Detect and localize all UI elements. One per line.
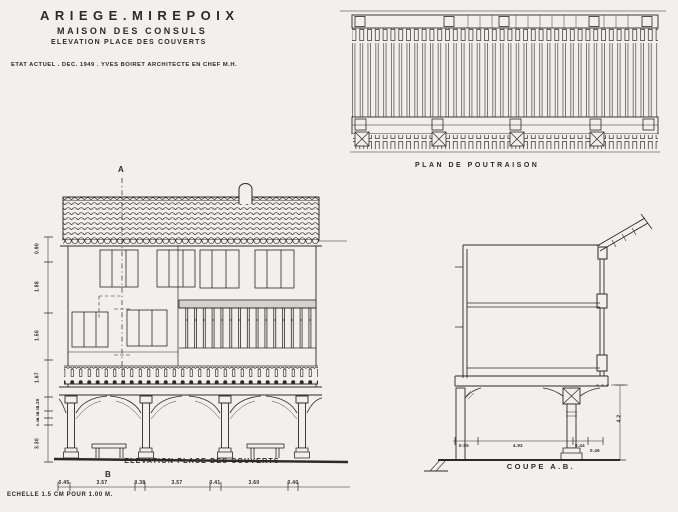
elevation-dim: 0.40 [283, 481, 303, 486]
axis-marker-a: A [118, 166, 124, 174]
elevation-dim: 3.57 [167, 481, 187, 486]
gallery-band [179, 300, 316, 348]
benches [92, 444, 284, 458]
rafter [597, 214, 652, 251]
elevation-left-dim: 1.50 [36, 326, 41, 346]
section-drawing [424, 214, 652, 471]
elevation-dim: 3.57 [92, 481, 112, 486]
section-dim: 4.92 [508, 444, 528, 449]
sheet-subtitle: MAISON DES CONSULS [57, 27, 207, 36]
chimney [239, 184, 252, 205]
section-dim: 0.44 [570, 444, 590, 449]
elevation-left-dim: 1.67 [36, 368, 41, 388]
plan-drawing [340, 11, 666, 152]
elevation-dim: 0.41 [205, 481, 225, 486]
elevation-dim: 3.60 [244, 481, 264, 486]
section-right-dim: 4.2 [618, 411, 623, 427]
carved-frieze [64, 366, 318, 384]
elevation-dim: 0.38 [130, 481, 150, 486]
elevation-left-dim: 0.48 [37, 414, 41, 430]
plan-caption: PLAN DE POUTRAISON [415, 162, 535, 169]
sheet-title: ARIEGE.MIREPOIX [40, 9, 240, 22]
axis-marker-b: B [105, 471, 111, 479]
arcade-columns [59, 396, 322, 458]
drawing-canvas [0, 0, 678, 512]
elevation-left-dim: 1.88 [36, 277, 41, 297]
middle-windows [72, 310, 167, 347]
elevation-drawing [44, 178, 350, 491]
section-dim: 0.55 [454, 444, 474, 449]
elevation-dim: 0.45 [54, 481, 74, 486]
elevation-left-dim: 3.30 [36, 434, 41, 454]
section-caption: COUPE A.B. [496, 463, 586, 471]
upper-windows [100, 250, 294, 288]
sheet-subtitle-2: ELEVATION PLACE DES COUVERTS [51, 39, 206, 46]
scale-note: ECHELLE 1.5 CM POUR 1.00 M. [7, 492, 113, 498]
elevation-left-dim: 0.90 [36, 239, 41, 259]
roof [60, 197, 347, 246]
drawing-sheet: ARIEGE.MIREPOIX MAISON DES CONSULS ELEVA… [0, 0, 678, 512]
section-dim: 0.46 [585, 449, 605, 454]
elevation-caption: ELEVATION PLACE DES COUVERTS [122, 458, 282, 465]
sheet-note: ETAT ACTUEL . DEC. 1949 . YVES BOIRET AR… [11, 63, 237, 69]
